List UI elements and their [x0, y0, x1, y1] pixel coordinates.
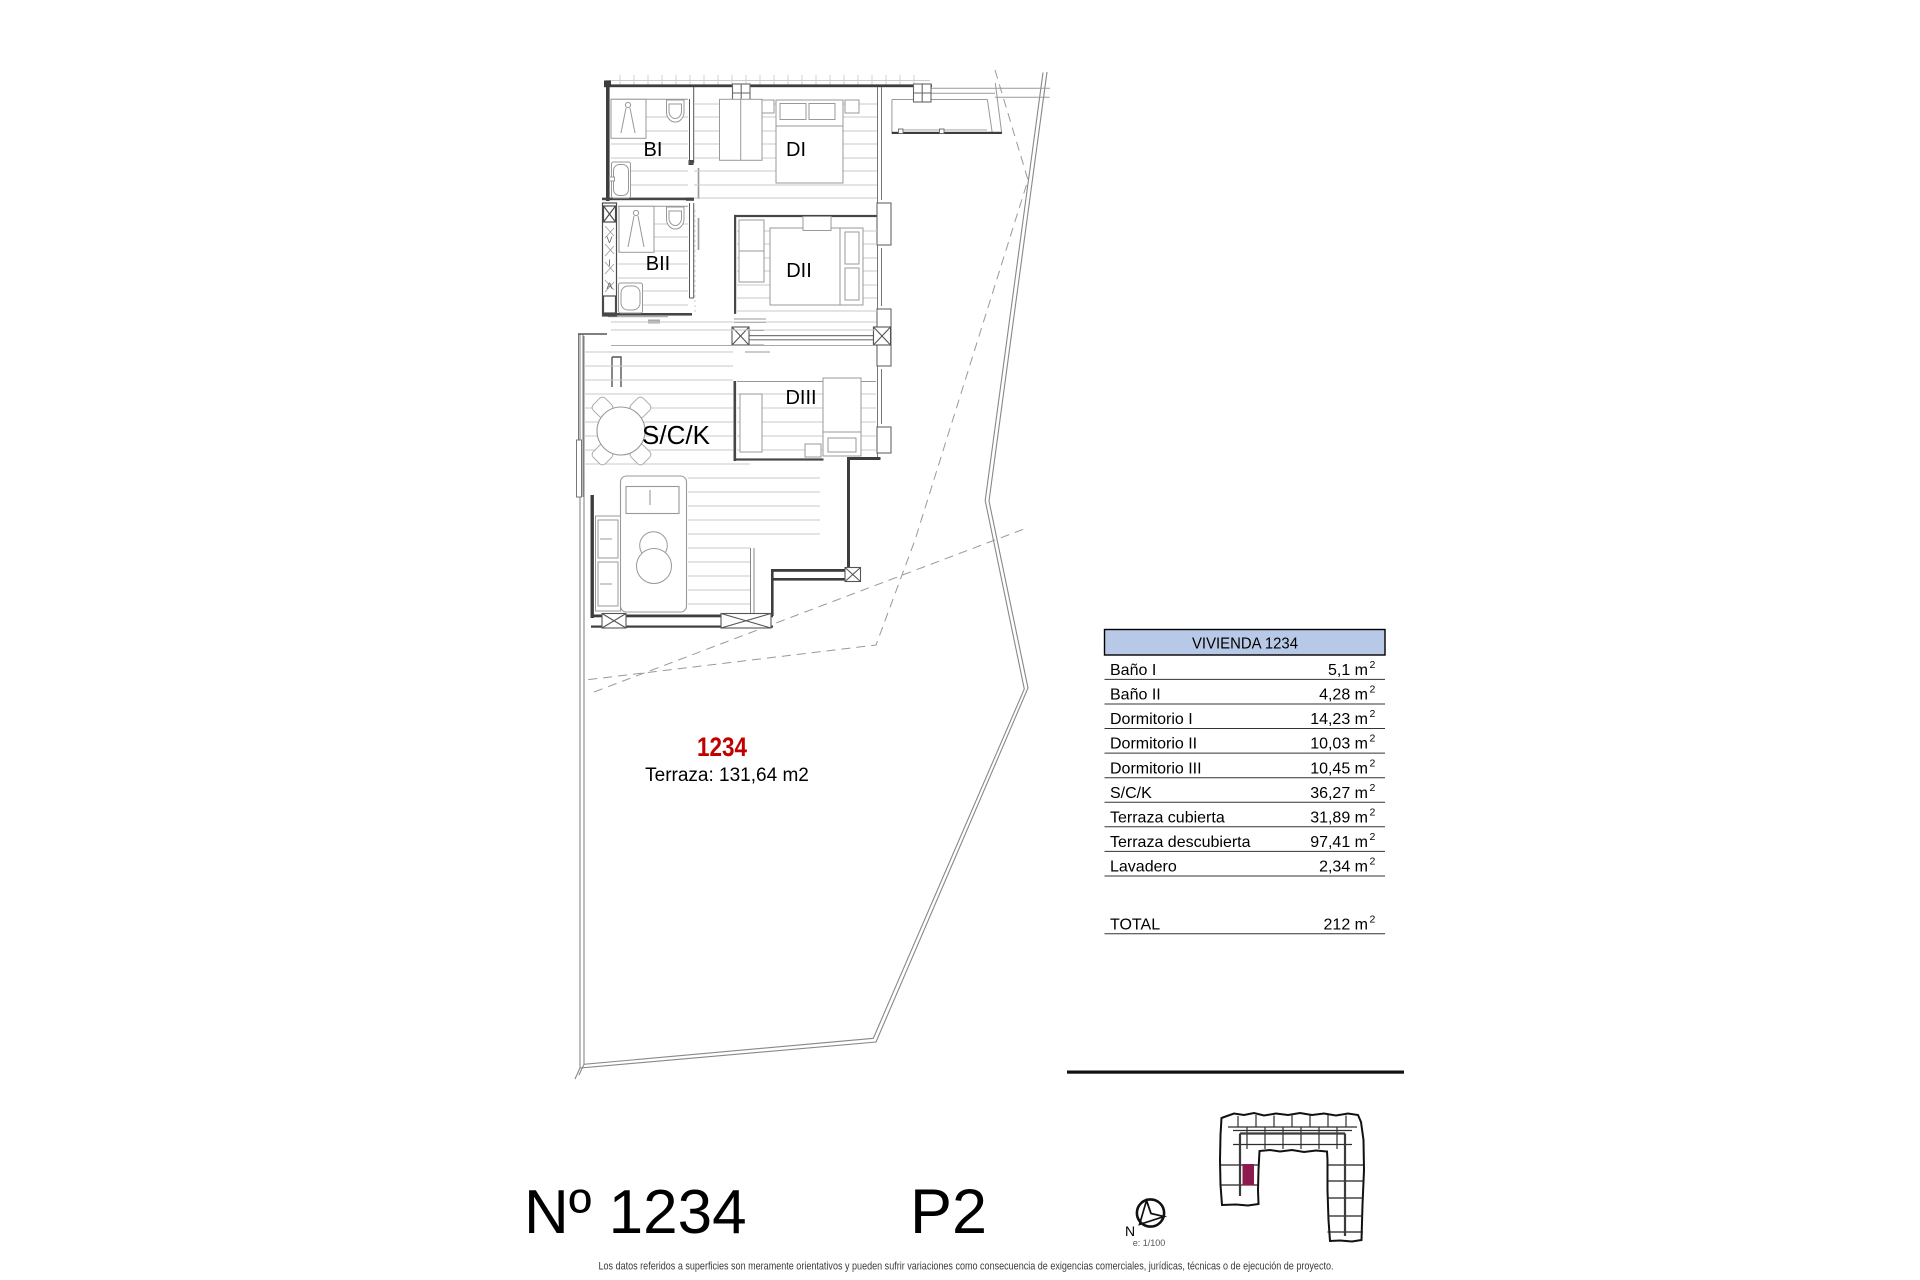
svg-text:A: A [606, 281, 612, 291]
svg-text:Lavadero: Lavadero [1110, 859, 1177, 876]
svg-text:Dormitorio II: Dormitorio II [1110, 736, 1197, 753]
svg-text:P2: P2 [910, 1177, 987, 1247]
svg-text:212 m: 212 m [1324, 916, 1368, 933]
svg-text:S/C/K: S/C/K [642, 420, 711, 450]
svg-text:S/C/K: S/C/K [1110, 785, 1152, 802]
svg-text:Terraza cubierta: Terraza cubierta [1110, 809, 1225, 826]
svg-text:N: N [1125, 1223, 1135, 1239]
svg-text:Los datos referidos a superfic: Los datos referidos a superficies son me… [599, 1261, 1334, 1273]
svg-text:31,89 m: 31,89 m [1310, 809, 1368, 826]
svg-text:VIVIENDA 1234: VIVIENDA 1234 [1192, 636, 1298, 653]
svg-text:2: 2 [1370, 684, 1376, 696]
svg-text:Terraza descubierta: Terraza descubierta [1110, 834, 1251, 851]
svg-text:2: 2 [1370, 757, 1376, 769]
svg-text:Nº 1234: Nº 1234 [524, 1178, 747, 1247]
svg-text:BI: BI [644, 139, 663, 161]
svg-text:2: 2 [1370, 913, 1376, 925]
svg-text:2: 2 [1370, 806, 1376, 818]
svg-text:14,23 m: 14,23 m [1310, 711, 1368, 728]
svg-text:2: 2 [1370, 708, 1376, 720]
svg-text:10,45 m: 10,45 m [1310, 760, 1368, 777]
svg-text:V: V [606, 235, 612, 245]
svg-text:I: I [608, 258, 611, 268]
svg-text:2: 2 [1370, 733, 1376, 745]
svg-text:e: 1/100: e: 1/100 [1133, 1238, 1166, 1248]
svg-text:2: 2 [1370, 782, 1376, 794]
svg-text:4,28 m: 4,28 m [1319, 687, 1368, 704]
svg-text:DI: DI [786, 139, 806, 161]
svg-text:36,27 m: 36,27 m [1310, 785, 1368, 802]
svg-text:5,1 m: 5,1 m [1328, 662, 1368, 679]
svg-text:Terraza: 131,64 m2: Terraza: 131,64 m2 [645, 765, 809, 786]
svg-text:2: 2 [1370, 856, 1376, 868]
svg-text:Baño I: Baño I [1110, 662, 1156, 679]
svg-text:Baño II: Baño II [1110, 687, 1161, 704]
svg-text:2: 2 [1370, 831, 1376, 843]
svg-text:2,34 m: 2,34 m [1319, 859, 1368, 876]
svg-text:DIII: DIII [785, 387, 816, 409]
svg-text:1234: 1234 [697, 732, 747, 762]
svg-text:Dormitorio III: Dormitorio III [1110, 760, 1202, 777]
svg-text:10,03 m: 10,03 m [1310, 736, 1368, 753]
svg-text:97,41 m: 97,41 m [1310, 834, 1368, 851]
svg-text:2: 2 [1370, 659, 1376, 671]
svg-text:BII: BII [646, 253, 670, 275]
svg-text:Dormitorio I: Dormitorio I [1110, 711, 1193, 728]
svg-text:TOTAL: TOTAL [1110, 916, 1160, 933]
svg-text:DII: DII [786, 260, 812, 282]
